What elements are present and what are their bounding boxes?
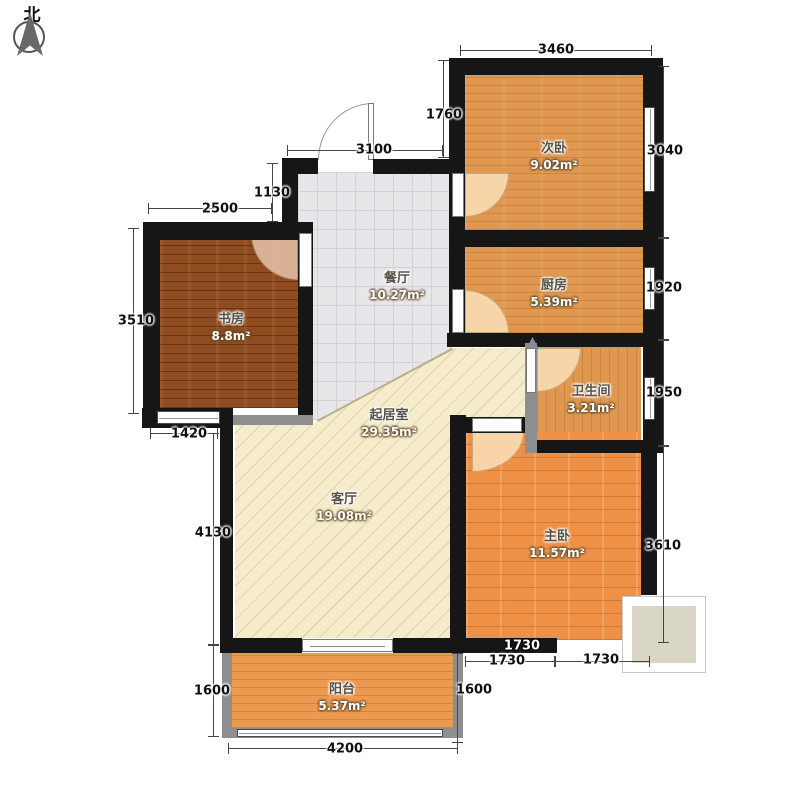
bedroom2-door-leaf	[452, 173, 464, 217]
room-area: 10.27m²	[369, 288, 425, 302]
room-label-master: 主卧 11.57m²	[529, 525, 585, 560]
dim-label-4200: 4200	[327, 742, 363, 757]
room-area: 3.21m²	[567, 401, 614, 415]
room-label-balcony: 阳台 5.37m²	[318, 678, 365, 713]
wall	[451, 58, 663, 75]
wall	[447, 333, 663, 347]
dim-label-1730-right: 1730	[583, 653, 619, 668]
room-name: 主卧	[529, 525, 585, 544]
dim-label-3610: 3610	[645, 539, 681, 554]
dim-label-3100: 3100	[356, 143, 392, 158]
floor-plan: 北	[0, 0, 800, 800]
room-area: 5.37m²	[318, 699, 365, 713]
room-name: 阳台	[318, 678, 365, 697]
sliding-door-track	[310, 646, 385, 647]
master-door-leaf	[472, 418, 522, 432]
bathroom-door-leaf	[526, 348, 536, 393]
wall	[530, 440, 657, 453]
room-name: 卫生间	[567, 380, 614, 399]
dim-label-3510: 3510	[118, 314, 154, 329]
room-name: 起居室	[361, 404, 417, 423]
wall-gray	[233, 415, 313, 425]
dim-label-1130: 1130	[254, 186, 290, 201]
terrace-floor	[632, 606, 696, 663]
wall	[220, 638, 302, 653]
dim-label-2500: 2500	[202, 202, 238, 217]
dim-label-1730-wall: 1730	[504, 639, 540, 654]
wall	[451, 230, 663, 247]
dim-label-1730-left: 1730	[489, 654, 525, 669]
room-name: 书房	[211, 308, 250, 327]
room-name: 厨房	[530, 274, 577, 293]
dim-label-3460: 3460	[538, 43, 574, 58]
study-window	[157, 411, 220, 424]
room-label-living: 客厅 19.08m²	[316, 488, 372, 523]
room-label-dining: 餐厅 10.27m²	[369, 267, 425, 302]
dim-label-3040: 3040	[647, 144, 683, 159]
room-area: 19.08m²	[316, 509, 372, 523]
wall	[143, 222, 313, 240]
room-name: 餐厅	[369, 267, 425, 286]
room-label-kitchen: 厨房 5.39m²	[530, 274, 577, 309]
room-label-family: 起居室 29.35m²	[361, 404, 417, 439]
dim-label-4130: 4130	[195, 526, 231, 541]
dim-label-1920: 1920	[646, 281, 682, 296]
room-name: 客厅	[316, 488, 372, 507]
dim-label-1950: 1950	[646, 386, 682, 401]
room-area: 29.35m²	[361, 425, 417, 439]
dim-label-1600-right: 1600	[456, 683, 492, 698]
room-area: 11.57m²	[529, 546, 585, 560]
wall	[450, 415, 466, 653]
wall	[373, 159, 451, 174]
dim-label-1600-left: 1600	[194, 684, 230, 699]
room-area: 9.02m²	[530, 158, 577, 172]
dim-line-1600-right	[457, 653, 458, 743]
study-door-leaf	[299, 233, 312, 287]
balcony-sliding-door	[302, 639, 393, 652]
room-area: 8.8m²	[211, 329, 250, 343]
room-label-bedroom2: 次卧 9.02m²	[530, 137, 577, 172]
room-label-bathroom: 卫生间 3.21m²	[567, 380, 614, 415]
room-area: 5.39m²	[530, 295, 577, 309]
dim-label-1760: 1760	[426, 108, 462, 123]
balcony-window	[237, 729, 443, 737]
dim-label-1420: 1420	[171, 427, 207, 442]
room-label-study: 书房 8.8m²	[211, 308, 250, 343]
wall	[641, 453, 657, 595]
room-name: 次卧	[530, 137, 577, 156]
kitchen-door-leaf	[452, 289, 464, 333]
